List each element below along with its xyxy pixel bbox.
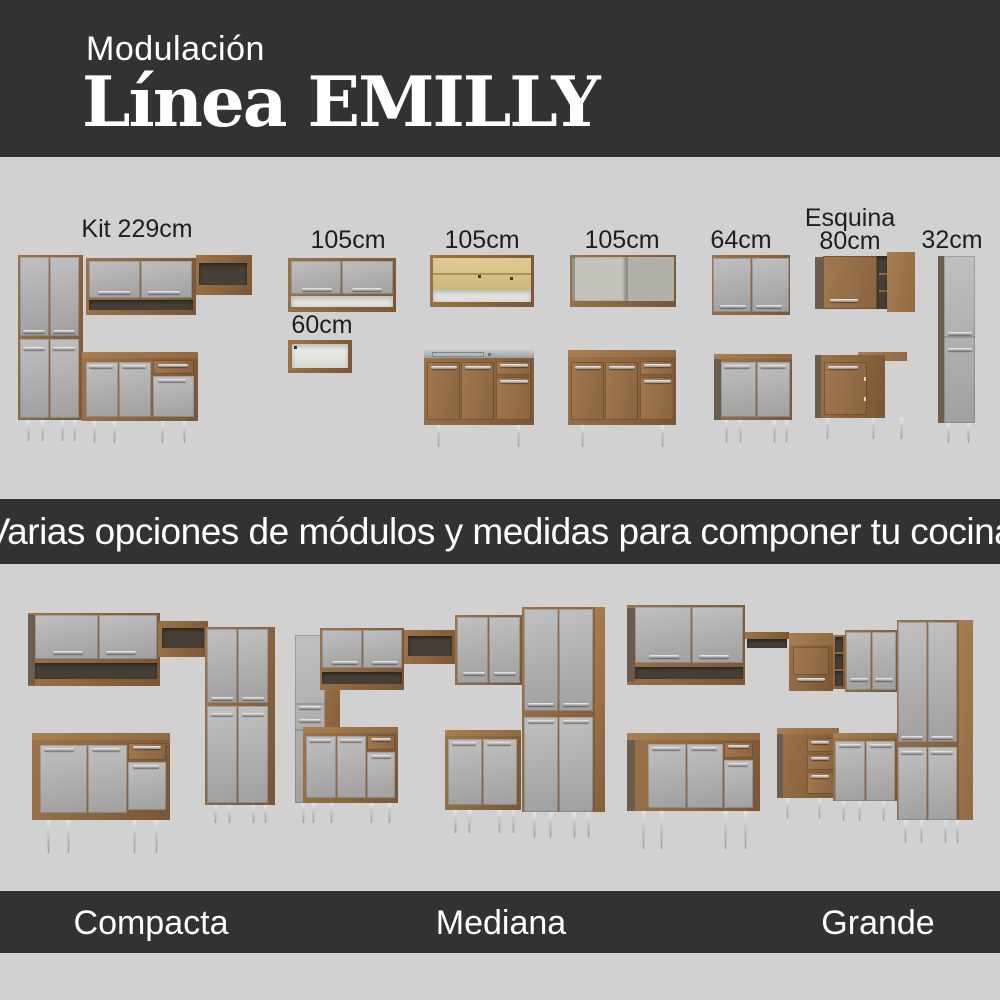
module-label-esquina80: Esquina80cm — [805, 207, 895, 253]
kitchen-grande-corner-wall-image — [789, 633, 833, 691]
module-glass105-image — [430, 255, 534, 307]
module-wall105-image — [288, 258, 396, 312]
module-tall32-image — [938, 256, 975, 443]
module-kit229-base-cabinet-image — [82, 352, 198, 443]
module-label-tall32: 32cm — [921, 229, 982, 252]
kitchen-grande-corner-base-image — [777, 728, 839, 818]
module-open105-wall-image — [570, 255, 676, 307]
kitchen-name-grande: Grande — [821, 904, 934, 943]
kitchen-compacta-wall-cabinet-image — [28, 613, 160, 686]
kitchen-grande-base2-image — [833, 733, 897, 821]
kitchen-mediana-base2-image — [445, 730, 521, 833]
options-banner-text: Varias opciones de módulos y medidas par… — [0, 511, 1000, 553]
kitchens-section — [0, 568, 1000, 891]
kitchen-grande-wall2-image — [845, 630, 897, 692]
kitchen-compacta-tall-cabinet-image — [205, 627, 275, 823]
kitchen-mediana-bridge-image — [404, 630, 456, 664]
module-kit229-tall-cabinet-image — [18, 255, 83, 443]
options-banner: Varias opciones de módulos y medidas par… — [0, 499, 1000, 564]
module-label-open105: 105cm — [584, 229, 659, 252]
kitchen-mediana-upper-doors-image — [455, 615, 522, 685]
kitchen-mediana-wall-cabinet-image — [320, 628, 404, 690]
module-kit229-wall-cabinet-image — [86, 258, 196, 315]
kitchen-compacta-base-cabinet-image — [32, 733, 170, 853]
module-label-wall64: 64cm — [710, 229, 771, 252]
kitchen-grande-tall-cabinet-image — [897, 620, 973, 843]
page-title: Línea EMILLY — [82, 62, 599, 143]
module-label-kit229: Kit 229cm — [81, 218, 192, 241]
module-wall64-image — [712, 255, 790, 315]
header-band: Modulación Línea EMILLY — [0, 0, 1000, 157]
kitchen-name-mediana: Mediana — [436, 904, 566, 943]
module-wall60-image — [288, 340, 352, 373]
kitchen-mediana-base-cabinet-image — [303, 727, 398, 823]
module-kit229-bridge-shelf-image — [196, 255, 252, 295]
kitchen-compacta-bridge-image — [158, 621, 208, 657]
module-base105-image — [568, 350, 676, 447]
module-esquina80-wall-image — [815, 252, 915, 312]
modules-section: Kit 229cm 105cm 60cm 105cm 105cm 64cm Es… — [0, 157, 1000, 499]
module-sink-base105-image — [424, 350, 534, 447]
kitchen-name-compacta: Compacta — [74, 904, 229, 943]
module-label-glass105: 105cm — [444, 229, 519, 252]
kitchen-grande-bridge-shelf-image — [745, 632, 789, 648]
kitchen-grande-wall-cabinet-image — [627, 605, 745, 685]
kitchen-grande-shelf-column-image — [833, 635, 845, 689]
module-label-wall60: 60cm — [291, 314, 352, 337]
module-label-wall105: 105cm — [310, 229, 385, 252]
module-base64-image — [714, 354, 792, 443]
kitchen-mediana-tall-cabinet-image — [522, 607, 605, 838]
page: Modulación Línea EMILLY Kit 229cm 105cm … — [0, 0, 1000, 1000]
module-esquina80-base-image — [815, 352, 907, 439]
kitchen-grande-base-cabinet-image — [627, 733, 760, 851]
